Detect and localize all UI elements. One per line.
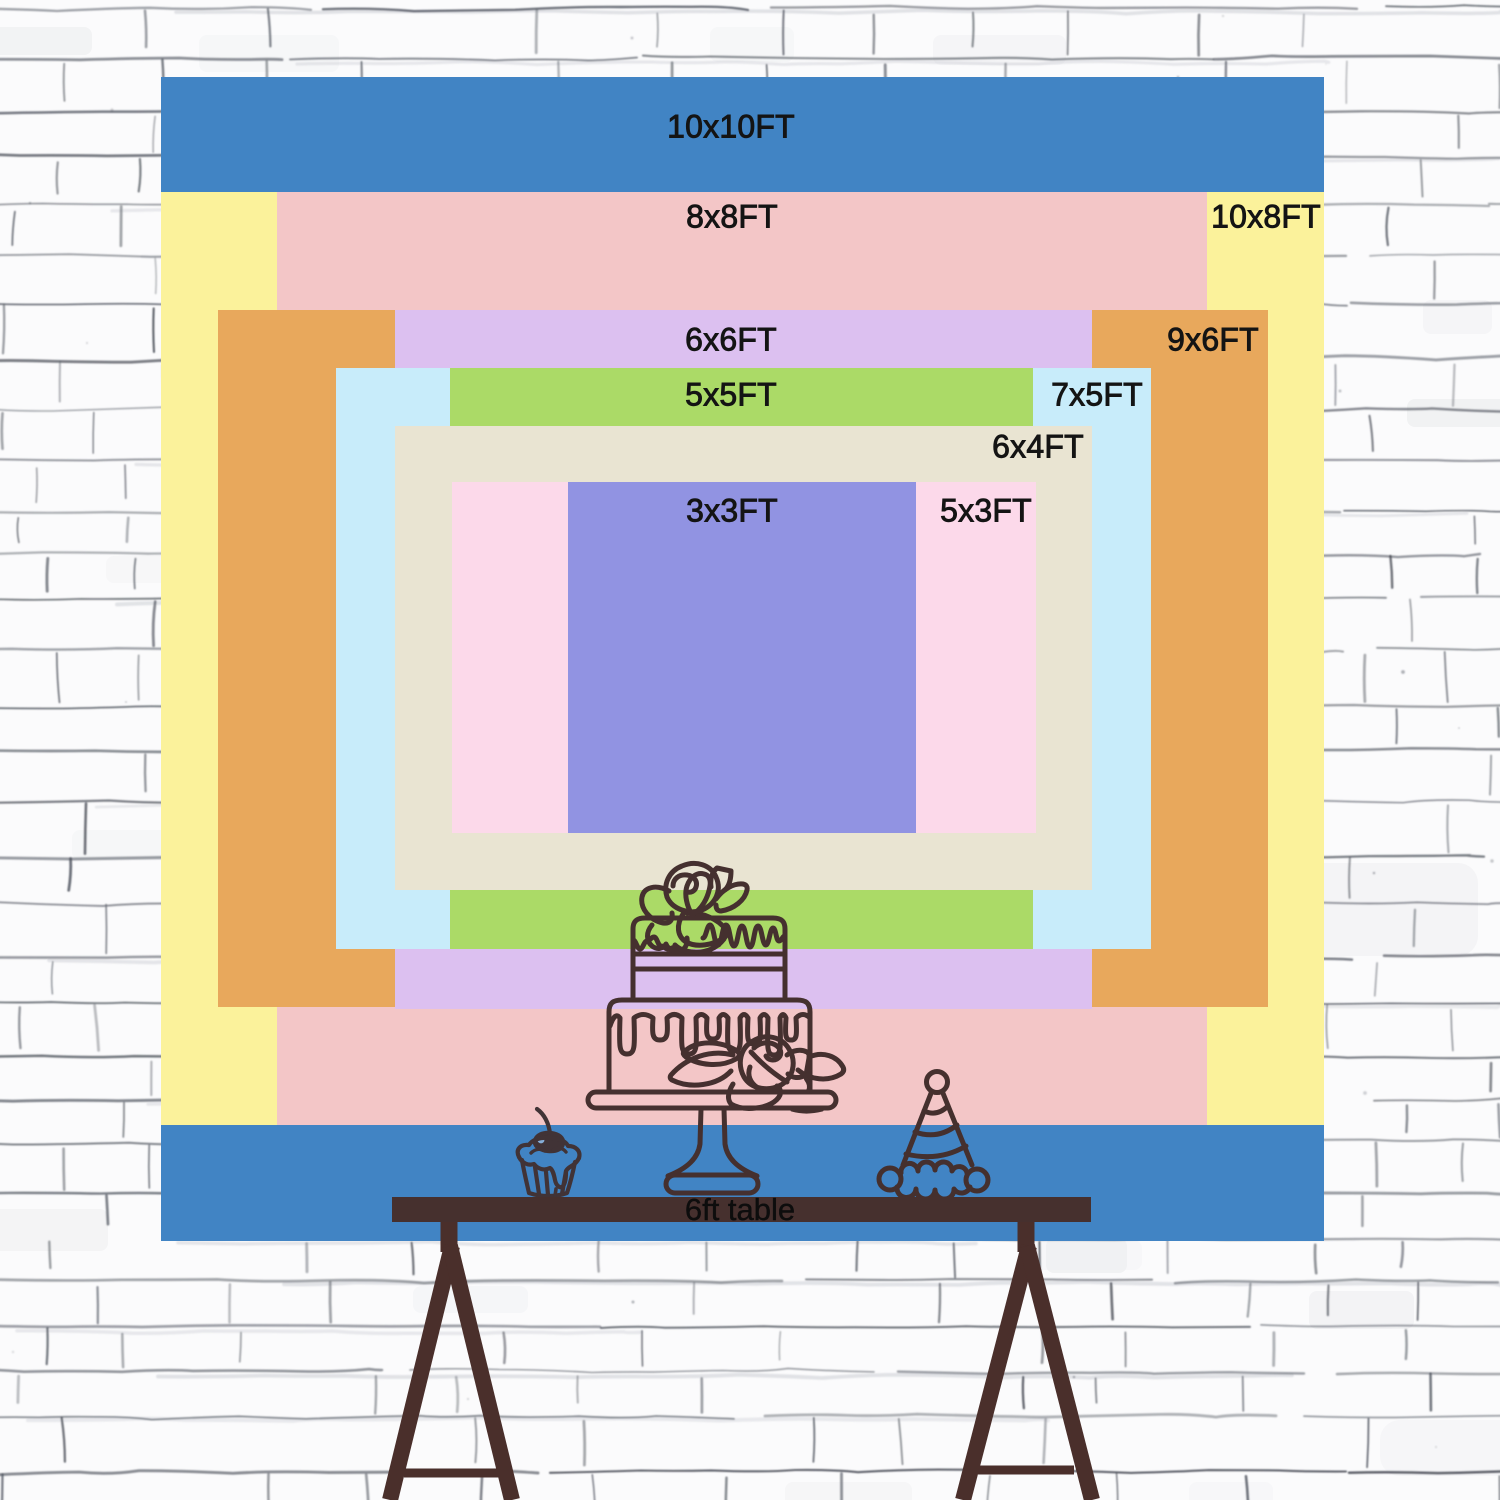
svg-text:6ft table: 6ft table <box>685 1192 795 1227</box>
